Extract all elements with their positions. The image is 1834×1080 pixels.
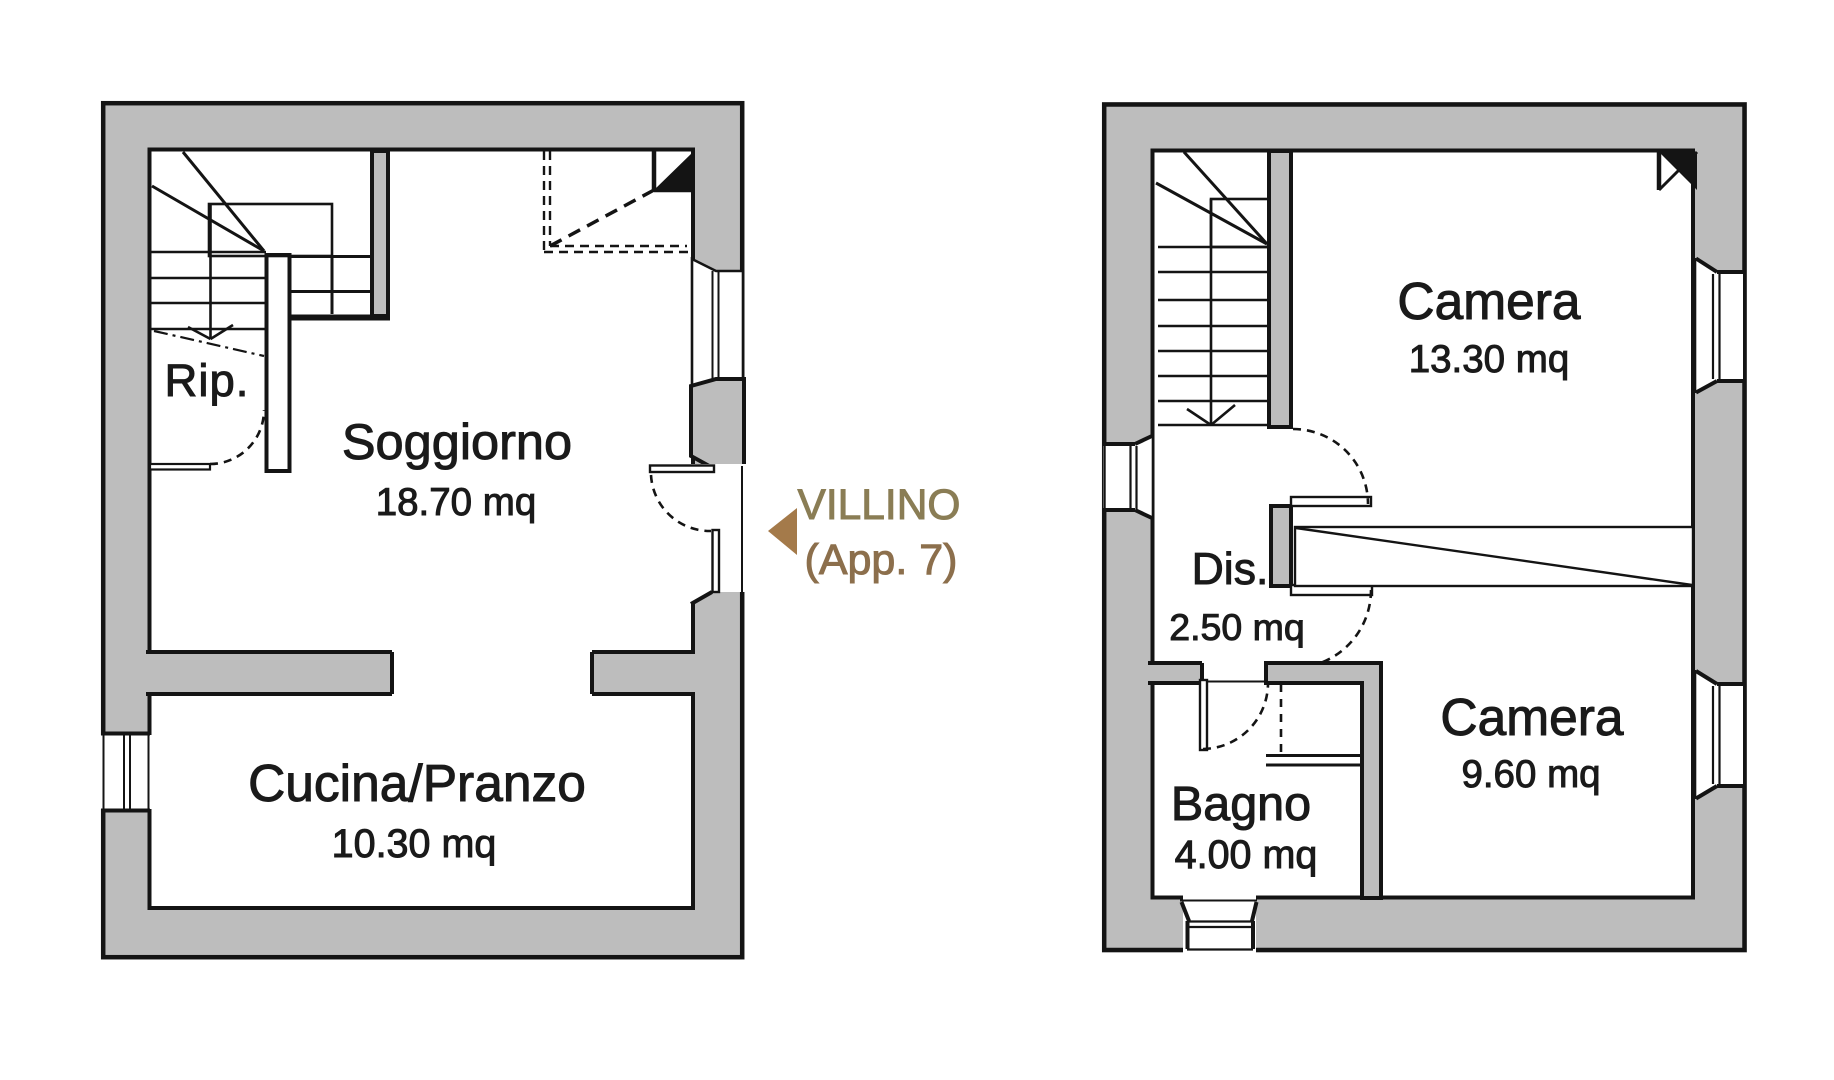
svg-text:13.30 mq: 13.30 mq [1409, 338, 1570, 381]
svg-text:Bagno: Bagno [1171, 777, 1311, 831]
svg-text:Cucina/Pranzo: Cucina/Pranzo [248, 754, 586, 812]
svg-text:(App. 7): (App. 7) [805, 536, 958, 584]
svg-text:10.30 mq: 10.30 mq [332, 822, 497, 866]
svg-text:Rip.: Rip. [165, 355, 250, 406]
svg-text:2.50 mq: 2.50 mq [1169, 606, 1305, 648]
svg-text:4.00 mq: 4.00 mq [1175, 833, 1318, 877]
svg-text:Camera: Camera [1397, 272, 1581, 330]
svg-text:9.60 mq: 9.60 mq [1461, 753, 1600, 796]
svg-text:Dis.: Dis. [1192, 545, 1269, 594]
svg-text:Camera: Camera [1440, 688, 1624, 746]
svg-text:18.70 mq: 18.70 mq [376, 481, 537, 524]
svg-text:VILLINO: VILLINO [798, 482, 961, 529]
svg-text:Soggiorno: Soggiorno [342, 413, 572, 470]
